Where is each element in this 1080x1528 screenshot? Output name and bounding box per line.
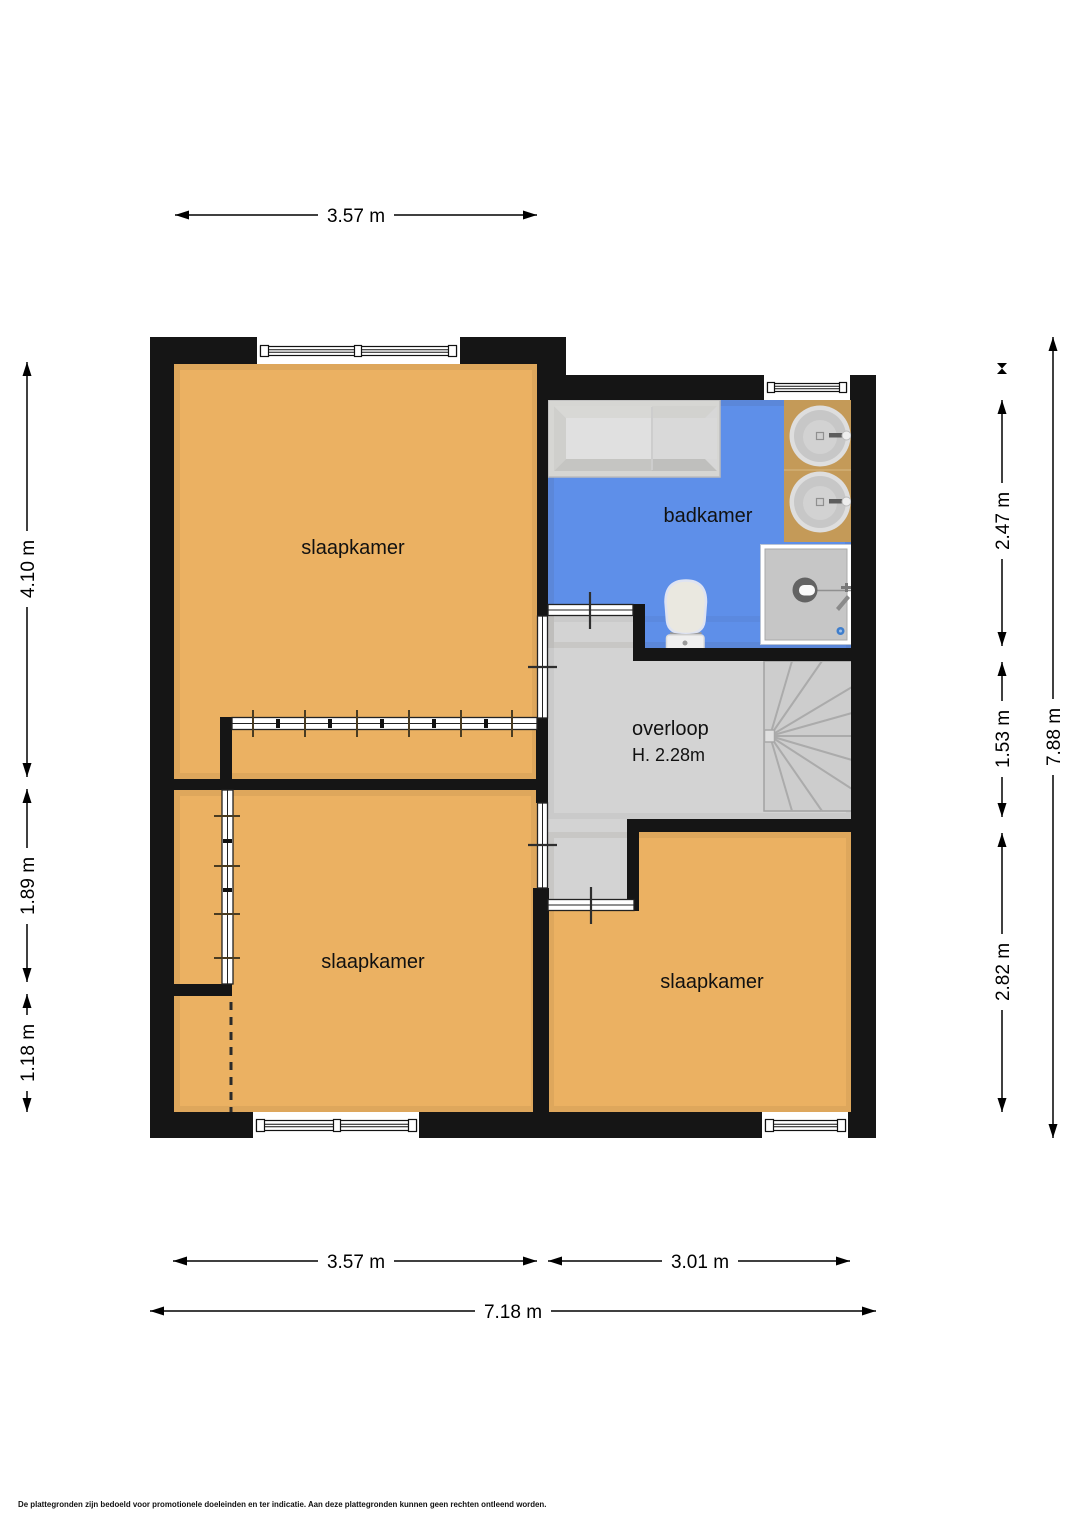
svg-text:H. 2.28m: H. 2.28m xyxy=(632,745,705,765)
svg-text:De plattegronden zijn bedoeld: De plattegronden zijn bedoeld voor promo… xyxy=(18,1500,546,1509)
svg-text:7.88 m: 7.88 m xyxy=(1044,708,1065,766)
svg-text:3.57 m: 3.57 m xyxy=(327,206,385,227)
svg-text:1.89 m: 1.89 m xyxy=(18,857,39,915)
svg-text:slaapkamer: slaapkamer xyxy=(321,951,425,973)
svg-text:7.18 m: 7.18 m xyxy=(484,1302,542,1323)
svg-text:slaapkamer: slaapkamer xyxy=(660,971,764,993)
svg-text:badkamer: badkamer xyxy=(664,505,753,527)
svg-text:3.57 m: 3.57 m xyxy=(327,1252,385,1273)
svg-text:overloop: overloop xyxy=(632,718,709,740)
svg-text:2.47 m: 2.47 m xyxy=(993,492,1014,550)
svg-text:1.18 m: 1.18 m xyxy=(18,1024,39,1082)
svg-text:slaapkamer: slaapkamer xyxy=(301,537,405,559)
svg-text:2.82 m: 2.82 m xyxy=(993,943,1014,1001)
svg-text:4.10 m: 4.10 m xyxy=(18,540,39,598)
svg-text:3.01 m: 3.01 m xyxy=(671,1252,729,1273)
svg-text:1.53 m: 1.53 m xyxy=(993,710,1014,768)
